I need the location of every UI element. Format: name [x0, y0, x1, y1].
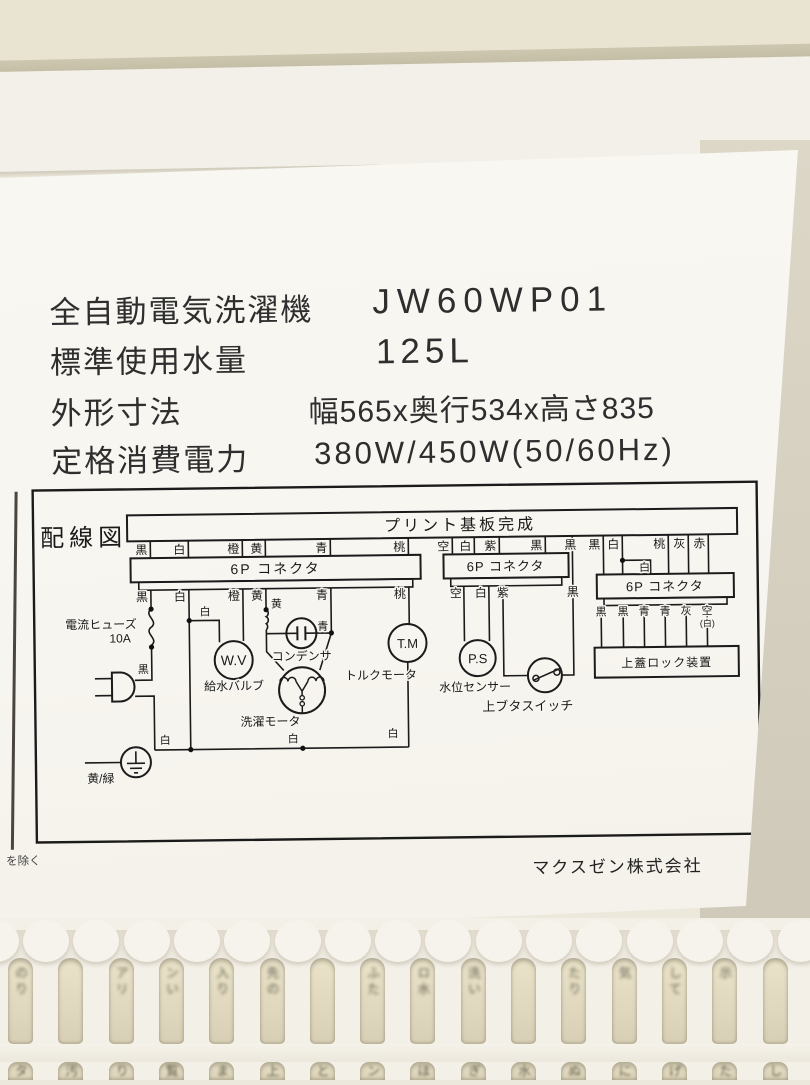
- grille-slot: に: [612, 1062, 637, 1080]
- wash-motor-label: 洗濯モータ: [240, 714, 300, 729]
- wire-label: 白: [607, 536, 619, 551]
- wire-label: 白: [173, 542, 185, 557]
- grille-bump: [627, 920, 673, 962]
- cutoff-text-fragment: を除く: [6, 852, 41, 868]
- grille-slot: 上: [260, 1062, 285, 1080]
- grille-slot: 先の: [260, 958, 285, 1044]
- obscured-text-fragment: り: [112, 1064, 131, 1080]
- grille-bump: [224, 920, 270, 962]
- spec-value-model: JW60WP01: [372, 279, 613, 322]
- lid-lock-label: 上蓋ロック装置: [621, 655, 712, 670]
- wire-label: 桃: [393, 539, 405, 554]
- spec-value-water: 125L: [376, 331, 474, 372]
- wire-label: 黒: [596, 606, 607, 619]
- wire-label: 紫: [497, 586, 509, 600]
- obscured-text-fragment: た: [715, 1064, 734, 1080]
- grille-slot: たり: [561, 958, 586, 1044]
- grille-bump: [325, 920, 371, 962]
- wire-label: 桃: [394, 586, 406, 601]
- grille-slot: タ: [8, 1062, 33, 1080]
- wire-label: 黒: [530, 538, 542, 552]
- obscured-text-fragment: 汚: [61, 1064, 80, 1080]
- connector-1: 6P コネクタ: [130, 555, 420, 591]
- grille-bump: [124, 920, 170, 962]
- wire-label: 白: [459, 538, 471, 553]
- obscured-text-fragment: と: [313, 1064, 332, 1080]
- wire-label: 空: [450, 586, 462, 600]
- company-name: マクスゼン株式会社: [532, 851, 703, 878]
- grille-bump: [375, 920, 421, 962]
- spec-label: 外形寸法: [50, 387, 183, 434]
- obscured-text-fragment: 入り: [212, 966, 231, 998]
- obscured-text-fragment: 洗い: [464, 966, 483, 998]
- grille-bump: [174, 920, 220, 962]
- grille-slot: 示: [712, 958, 737, 1044]
- obscured-text-fragment: 水: [514, 1064, 533, 1080]
- wire-label: 黒: [135, 543, 147, 557]
- ground-label: 黄/緑: [87, 771, 115, 786]
- grille-slot: アリ: [109, 958, 134, 1044]
- wire-tag-blue: 青: [317, 620, 328, 633]
- grille-slot: 洗い: [461, 958, 486, 1044]
- wire-label: 桃: [653, 536, 665, 551]
- photo-of-washer-spec-label: { "spec": { "rows": [ {"label": "全自動電気洗濯…: [0, 0, 810, 1080]
- grille-slot: して: [662, 958, 687, 1044]
- torque-motor-label: トルクモータ: [345, 668, 417, 683]
- obscured-text-fragment: ンい: [162, 966, 181, 998]
- obscured-text-fragment: のり: [11, 966, 30, 998]
- wire-label: 青: [639, 605, 650, 618]
- grille-crossbar: [0, 1044, 810, 1062]
- obscured-text-fragment: ふた: [363, 966, 382, 998]
- obscured-text-fragment: して: [665, 966, 684, 998]
- wire-label-black-direct: 黒: [564, 538, 576, 552]
- grille-slot: ぎ: [461, 1062, 486, 1080]
- wire-label: 橙: [228, 588, 240, 603]
- water-valve-label: 給水バルブ: [204, 678, 264, 694]
- wire-label: 黄: [250, 542, 262, 556]
- grille-bump: [677, 920, 723, 962]
- grille-bump: [576, 920, 622, 962]
- grille-slot: し: [763, 1062, 788, 1080]
- grille-slot: [310, 958, 335, 1044]
- grille-slot: ま: [209, 1062, 234, 1080]
- wire-label: 橙: [227, 541, 239, 556]
- wire-label: 灰: [681, 604, 692, 618]
- spec-value-power: 380W/450W(50/60Hz): [314, 432, 675, 472]
- wire-label: 黄: [251, 589, 263, 603]
- wire-label: 白: [475, 585, 487, 600]
- fuse-rating: 10A: [109, 631, 131, 645]
- obscured-text-fragment: ロ水: [413, 966, 432, 998]
- obscured-text-fragment: 先の: [263, 966, 282, 998]
- diagram-title: 配線図: [40, 524, 127, 552]
- wire-label: 灰: [673, 537, 685, 551]
- grille-bump: [73, 920, 119, 962]
- grille-slot: た: [712, 1062, 737, 1080]
- obscured-text-fragment: 気: [615, 966, 634, 982]
- pcb-label: プリント基板完成: [384, 515, 536, 535]
- wire-label: 黒: [567, 585, 579, 599]
- grille-bump: [727, 920, 773, 962]
- wire-tag-white: 白: [200, 604, 211, 618]
- obscured-text-fragment: ン: [363, 1064, 382, 1080]
- grille-bump: [476, 920, 522, 962]
- obscured-text-fragment: げ: [665, 1064, 684, 1080]
- wire-tag-yellow: 黄: [271, 597, 282, 611]
- wire-label: 黒: [588, 538, 600, 552]
- choke-coil: [266, 610, 268, 630]
- obscured-text-fragment: タ: [11, 1064, 30, 1080]
- ground-symbol: [121, 747, 151, 777]
- wire-label: 青: [315, 541, 327, 555]
- obscured-text-fragment: たり: [564, 966, 583, 998]
- connector-3: 6P コネクタ: [597, 573, 734, 606]
- wire-label: 赤: [693, 536, 705, 550]
- grille-slot: のり: [8, 958, 33, 1044]
- grille-slot: げ: [662, 1062, 687, 1080]
- obscured-text-fragment: 上: [263, 1064, 282, 1080]
- pressure-sensor-symbol-text: P.S: [468, 651, 488, 666]
- obscured-text-fragment: し: [766, 1064, 785, 1080]
- wire-label: 黒: [136, 590, 148, 604]
- wire-label: 青: [660, 605, 671, 618]
- vent-grille: のりアリンい入り先のふたロ水洗いたり気して示 タ汚り覧ま上とンほぎ水ぬにげたし: [0, 918, 810, 1080]
- obscured-text-fragment: 示: [715, 966, 734, 982]
- grille-slot: ロ水: [410, 958, 435, 1044]
- grille-slot: ほ: [410, 1062, 435, 1080]
- wire-label: 青: [316, 588, 328, 602]
- wire-label: 黒: [618, 605, 629, 618]
- grille-slot: ふた: [360, 958, 385, 1044]
- lid-switch-symbol: [528, 658, 562, 692]
- wire-label: 空: [702, 603, 713, 617]
- grille-slot: ン: [360, 1062, 385, 1080]
- connector-2-label: 6P コネクタ: [467, 558, 545, 574]
- capacitor-label: コンデンサ: [272, 648, 332, 664]
- wire-tag-white: 白: [288, 731, 299, 745]
- power-plug-icon: [112, 672, 135, 701]
- obscured-text-fragment: に: [615, 1064, 634, 1080]
- pressure-sensor-label: 水位センサー: [439, 679, 511, 695]
- grille-slot: と: [310, 1062, 335, 1080]
- grille-slot: 汚: [58, 1062, 83, 1080]
- grille-bump: [275, 920, 321, 962]
- connector-3-label: 6P コネクタ: [626, 578, 704, 594]
- conn3-bottom-labels: 黒 黒 青 青 灰 空 (白): [596, 603, 715, 629]
- lid-switch-label: 上ブタスイッチ: [482, 698, 573, 714]
- wire-tag-black: 黒: [138, 663, 149, 676]
- obscured-text-fragment: 覧: [162, 1064, 181, 1080]
- connector-2: 6P コネクタ: [443, 553, 568, 587]
- grille-slot: り: [109, 1062, 134, 1080]
- wire-label: 白: [639, 560, 650, 574]
- connector-1-label: 6P コネクタ: [230, 560, 320, 577]
- grille-slot: [763, 958, 788, 1044]
- spec-label: 定格消費電力: [51, 434, 250, 481]
- obscured-text-fragment: ぎ: [464, 1064, 483, 1080]
- wire-label: (白): [700, 617, 715, 628]
- grille-bump: [23, 920, 69, 962]
- wash-motor-symbol: [279, 667, 326, 714]
- wire-label: 空: [437, 539, 449, 553]
- grille-slot: 水: [511, 1062, 536, 1080]
- torque-motor-symbol-text: T.M: [397, 636, 418, 651]
- spec-value-size: 幅565x奥行534x高さ835: [308, 383, 655, 431]
- grille-bump: [526, 920, 572, 962]
- wire-tag-white: 白: [160, 733, 171, 747]
- grille-slot: [511, 958, 536, 1044]
- wire-tag-white: 白: [388, 726, 399, 740]
- fuse-element: [149, 609, 154, 647]
- grille-slot: ぬ: [561, 1062, 586, 1080]
- grille-slot: ンい: [159, 958, 184, 1044]
- grille-slot: [58, 958, 83, 1044]
- wire-label: 紫: [484, 539, 496, 553]
- spec-label: 全自動電気洗濯機: [49, 284, 314, 332]
- wire-label: 白: [174, 589, 186, 604]
- grille-slot: 覧: [159, 1062, 184, 1080]
- grille-slot: 気: [612, 958, 637, 1044]
- obscured-text-fragment: ほ: [413, 1064, 432, 1080]
- spec-label: 標準使用水量: [50, 335, 249, 382]
- obscured-text-fragment: ぬ: [564, 1064, 583, 1080]
- water-valve-symbol-text: W.V: [221, 652, 248, 668]
- obscured-text-fragment: ま: [212, 1064, 231, 1080]
- fuse-label: 電流ヒューズ: [65, 616, 137, 632]
- wiring-diagram: 配線図 プリント基板完成 6P コネクタ 6P コネクタ 6P コネクタ 上蓋ロ…: [0, 473, 810, 863]
- capacitor-plates: [297, 626, 305, 640]
- grille-slot: 入り: [209, 958, 234, 1044]
- obscured-text-fragment: アリ: [112, 966, 131, 998]
